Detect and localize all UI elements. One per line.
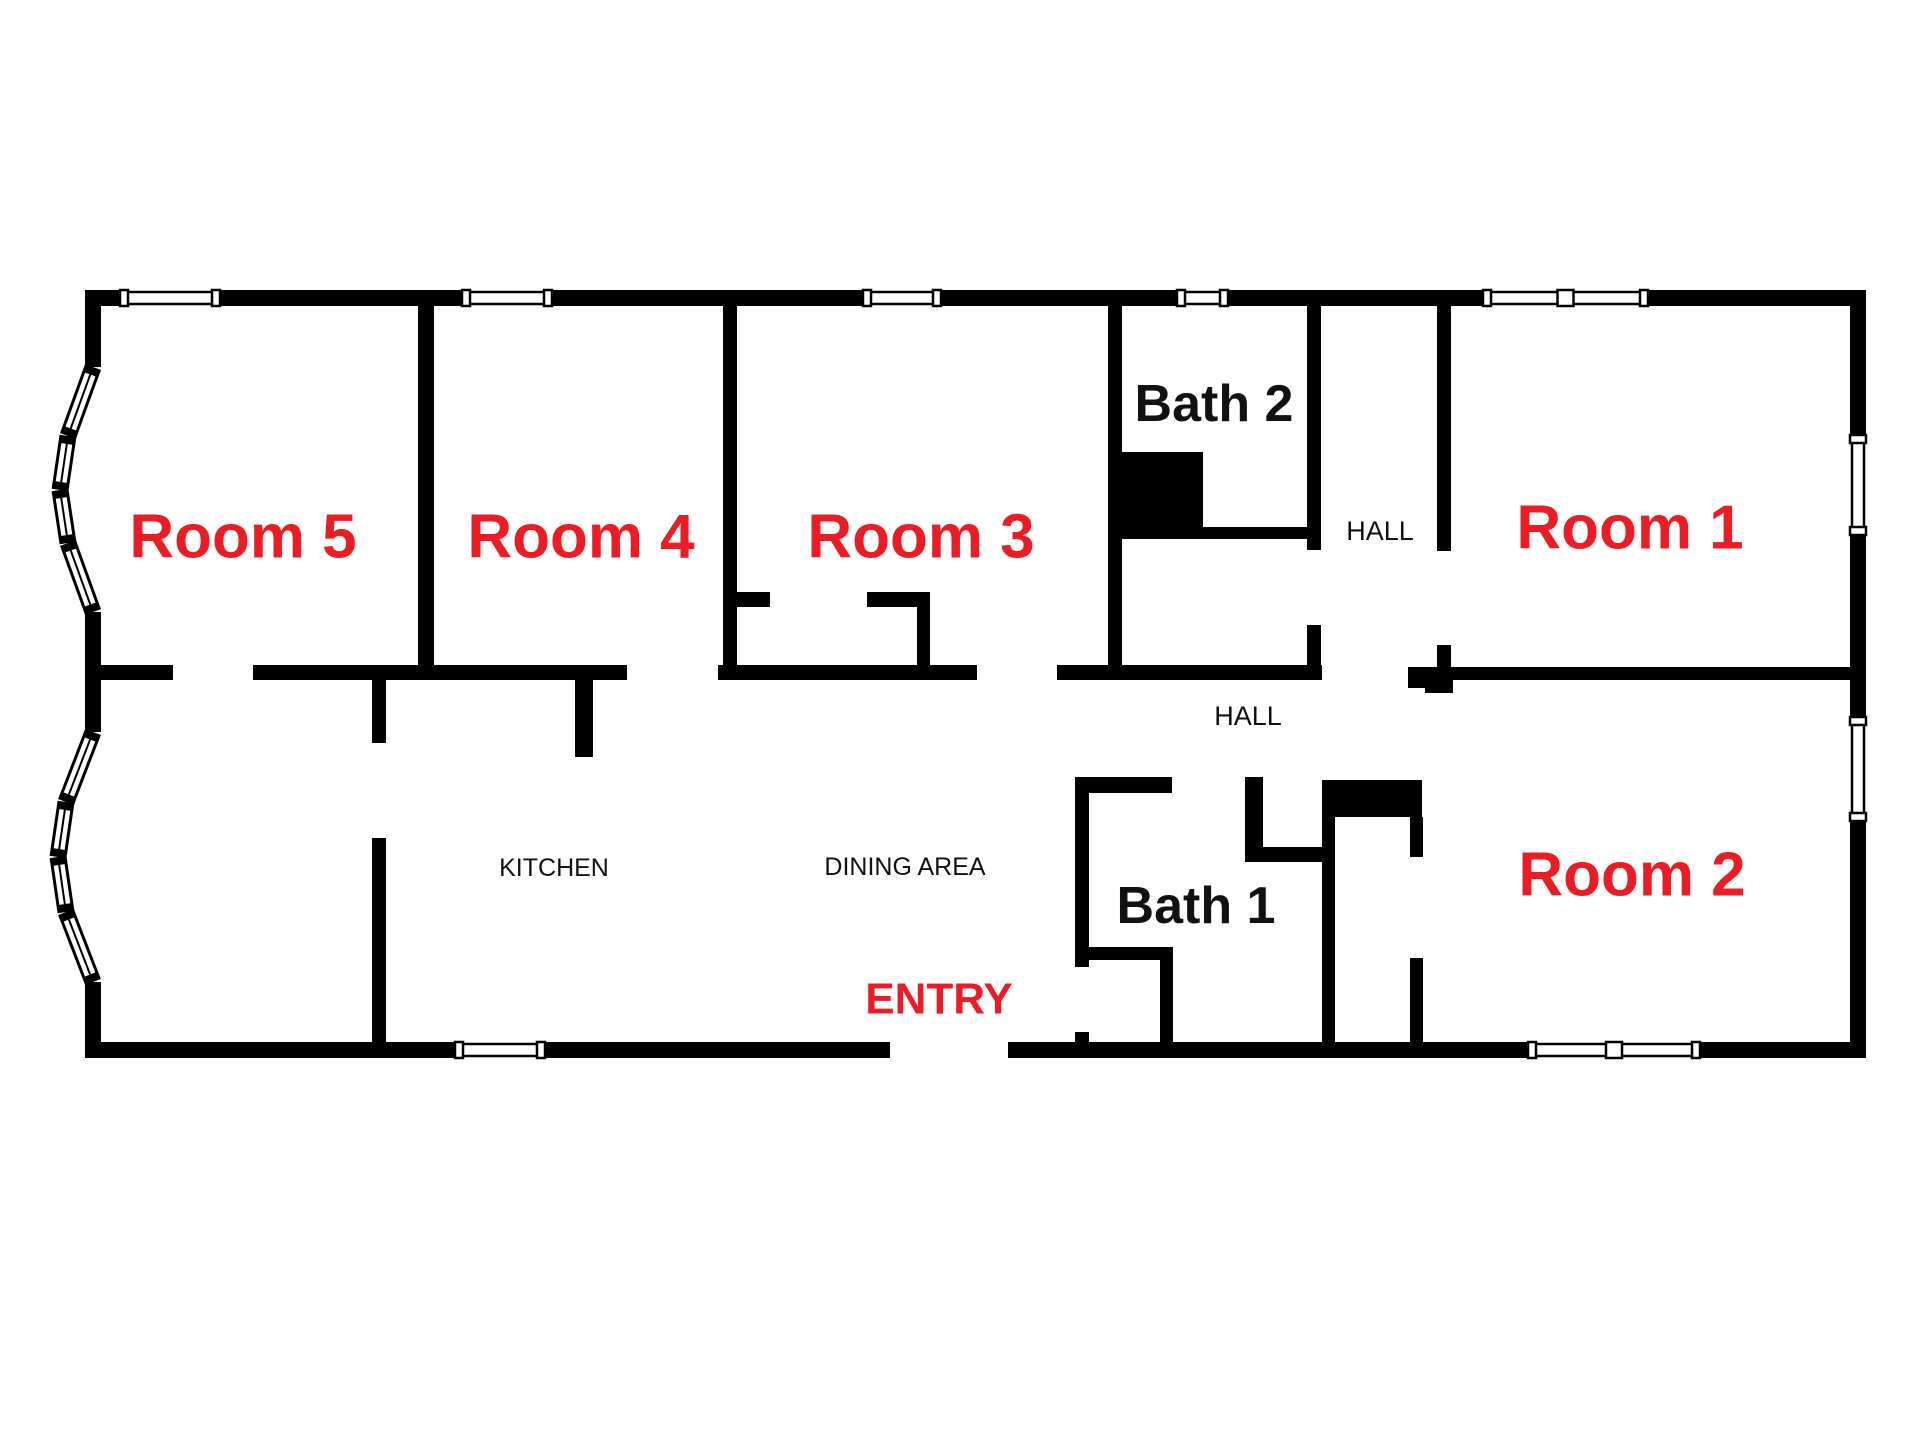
window-kitchen-bottom-icon — [455, 1040, 545, 1060]
wall-midwall-room5-left — [101, 665, 173, 680]
label-room-4: Room 4 — [467, 503, 695, 572]
label-hall-upper: HALL — [1346, 516, 1414, 546]
label-hall-lower: HALL — [1214, 701, 1282, 731]
window-room1-top-icon — [1483, 288, 1648, 308]
wall-kitchen-divider-low — [372, 838, 386, 1042]
wall-bath1-shower-horiz — [1082, 947, 1173, 960]
window-bath2-top-icon — [1177, 288, 1228, 308]
label-dining-area: DINING AREA — [824, 853, 985, 881]
window-room3-top-icon — [863, 288, 941, 308]
label-room-2: Room 2 — [1518, 841, 1745, 910]
label-kitchen: KITCHEN — [499, 854, 609, 882]
wall-bath1-shower-vert — [1160, 947, 1173, 1042]
wall-midwall-room3 — [718, 665, 977, 680]
wall-midwall-bath2 — [1057, 665, 1322, 680]
wall-room1-left-upper — [1437, 306, 1451, 551]
wall-bath2-subwall — [1122, 527, 1313, 539]
opening-kitchen-door — [370, 743, 388, 838]
opening-room2-closet-door — [1408, 857, 1425, 958]
label-room-1: Room 1 — [1516, 494, 1743, 563]
wall-kitchen-divider-up — [372, 680, 386, 743]
wall-divider-room4-room3 — [723, 306, 737, 680]
opening-room5-door — [173, 663, 253, 682]
window-room2-right-icon — [1848, 717, 1868, 821]
opening-entry-closet-door — [1073, 967, 1091, 1032]
wall-bath1-nook-horiz — [1245, 847, 1322, 862]
opening-room3-door — [977, 663, 1057, 682]
label-room-3: Room 3 — [807, 503, 1034, 572]
label-bath-2: Bath 2 — [1135, 375, 1294, 433]
label-room-5: Room 5 — [129, 503, 356, 572]
wall-outer-left-lower — [85, 982, 101, 1058]
opening-room4-door — [627, 663, 718, 682]
wall-bath2-right-upper — [1307, 306, 1321, 550]
wall-bath1-right — [1322, 780, 1335, 1042]
opening-hall-passage — [1322, 663, 1408, 682]
wall-room2-left-upper — [1410, 817, 1423, 857]
page-background — [0, 0, 1920, 1440]
wall-outer-left-upper — [85, 290, 101, 367]
label-bath-1: Bath 1 — [1117, 877, 1276, 935]
wall-midwall-room5-room4 — [253, 665, 627, 680]
opening-bath2-area-door — [1305, 550, 1323, 625]
window-room5-top-icon — [120, 288, 220, 308]
floor-plan-page: Room 5Room 4Room 3Room 1Room 2Bath 2Bath… — [0, 0, 1920, 1440]
wall-room3-closet-right — [917, 592, 930, 680]
wall-bath2-fixture-notch — [1108, 452, 1203, 530]
floor-plan-svg: Room 5Room 4Room 3Room 1Room 2Bath 2Bath… — [0, 0, 1920, 1440]
wall-divider-room5-room4 — [418, 306, 434, 680]
window-room1-right-icon — [1848, 435, 1868, 535]
wall-bath1-left-lower — [1075, 1032, 1089, 1058]
opening-room2-hall-door — [1408, 688, 1425, 780]
wall-room2-left-lower — [1410, 958, 1423, 1042]
opening-entry-opening — [890, 1040, 1008, 1060]
window-room2-bottom-icon — [1528, 1040, 1700, 1060]
wall-room3-closet-stub-l — [737, 592, 770, 607]
wall-outer-left-mid — [85, 612, 101, 732]
wall-bath1-left-upper — [1075, 777, 1089, 967]
wall-kitchen-dining-stub — [575, 680, 593, 757]
window-room4-top-icon — [462, 288, 552, 308]
opening-room1-door — [1435, 551, 1453, 645]
wall-bath1-top — [1075, 777, 1172, 793]
label-entry: ENTRY — [865, 975, 1013, 1024]
wall-bath1-fixture-notch — [1322, 780, 1422, 817]
opening-bath1-door — [1172, 775, 1245, 795]
wall-midwall-room1-room2 — [1408, 667, 1866, 680]
